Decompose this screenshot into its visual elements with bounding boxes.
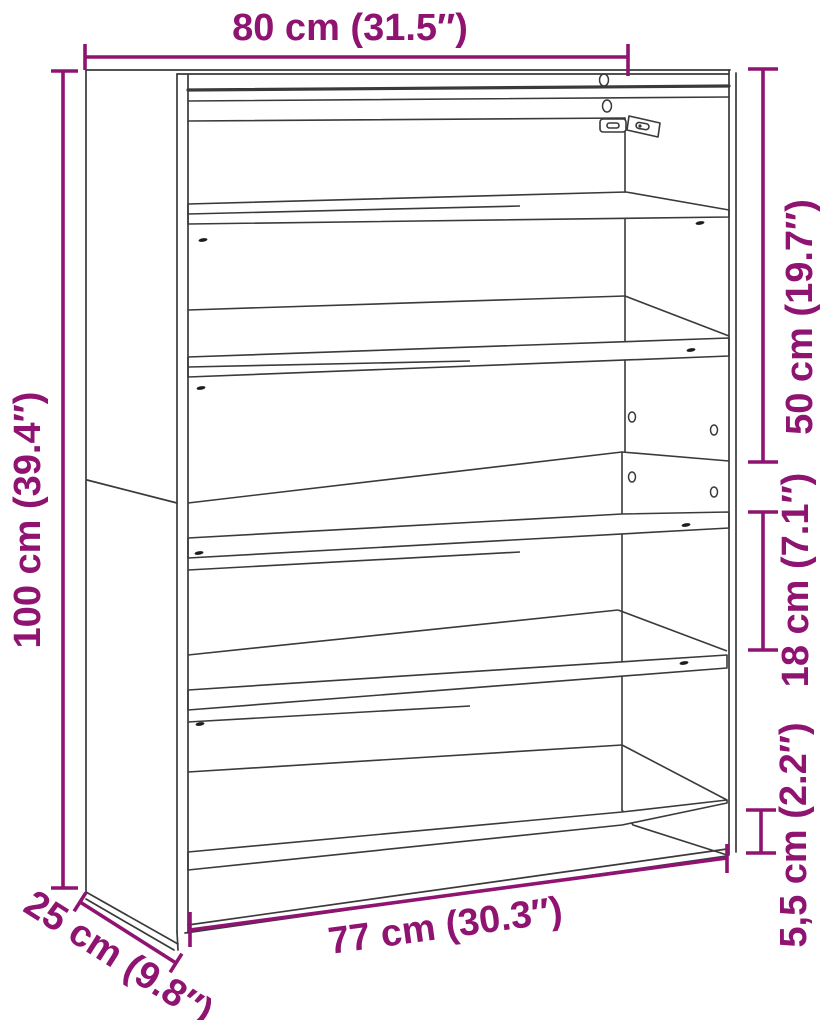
dim-label-upper-section-right: 50 cm (19.7″) <box>779 199 821 435</box>
shelf-2 <box>188 296 729 377</box>
dim-label-shelf-gap-right: 18 cm (7.1″) <box>775 473 817 688</box>
shelf-5 <box>188 745 727 870</box>
dim-line-height-left <box>51 71 78 888</box>
product-dimension-diagram: 80 cm (31.5″) 100 cm (39.4″) 50 cm (19.7… <box>0 0 826 1020</box>
shelf-3 <box>188 452 729 570</box>
dim-line-bottom-gap-right <box>746 810 776 853</box>
dim-label-depth-bottom-left: 25 cm (9.8″) <box>17 883 221 1020</box>
dim-line-upper-section-right <box>748 69 778 462</box>
dim-label-height-left: 100 cm (39.4″) <box>7 392 49 649</box>
shelf-1 <box>188 192 729 224</box>
wall-bracket-hardware <box>600 116 660 137</box>
shelf-4 <box>188 610 727 722</box>
dim-label-bottom-gap-right: 5,5 cm (2.2″) <box>773 722 815 947</box>
shoe-rack-diagram: 80 cm (31.5″) 100 cm (39.4″) 50 cm (19.7… <box>0 0 826 1020</box>
dim-line-shelf-gap-right <box>748 512 778 650</box>
dim-label-width-top: 80 cm (31.5″) <box>232 7 468 49</box>
